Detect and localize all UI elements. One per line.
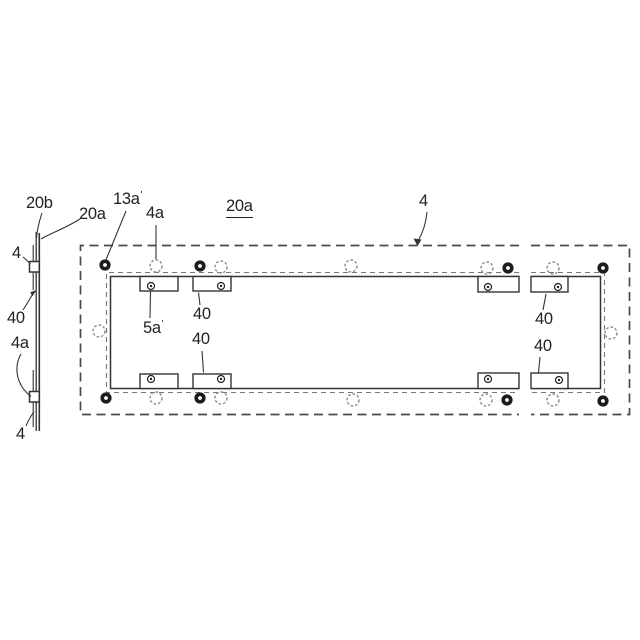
- label-4a-top: 4a: [146, 205, 164, 222]
- inner-opening-edge-main: [111, 277, 520, 389]
- open-hole-icon: [347, 394, 359, 406]
- side-clip-lower: [30, 392, 40, 403]
- open-hole-icon: [93, 325, 105, 337]
- side-view: [30, 232, 40, 431]
- label-4-side-top: 4: [12, 245, 21, 262]
- clip-bracket: [140, 374, 178, 389]
- label-4-side-bottom: 4: [16, 426, 25, 443]
- open-hole-icon: [345, 260, 357, 272]
- label-20b: 20b: [26, 195, 53, 212]
- label-40-right-upper: 40: [535, 311, 553, 328]
- patent-drawing-page: 20b 20a 4 40 4a 4 13a' 4a 20a 4 5a' 40 4…: [0, 0, 640, 640]
- label-40-right-lower: 40: [534, 338, 552, 355]
- open-hole-icon: [215, 261, 227, 273]
- leader-40-right-upper: [543, 294, 546, 310]
- leader-lines: [17, 211, 546, 426]
- clip-bracket: [531, 277, 568, 293]
- side-clip-upper: [30, 262, 40, 273]
- label-13a: 13a': [113, 191, 142, 208]
- inner-opening-edge-right: [531, 277, 601, 389]
- leader-4a-side: [17, 354, 31, 397]
- leader-4-arrow: [418, 212, 427, 241]
- open-hole-icon: [547, 394, 559, 406]
- label-5a: 5a': [143, 320, 163, 337]
- label-20a-side: 20a: [79, 206, 106, 223]
- clip-bracket: [193, 277, 231, 292]
- open-hole-icon: [480, 394, 492, 406]
- leader-40-left-lower: [202, 351, 204, 373]
- clip-bracket: [140, 277, 178, 292]
- clip-bracket: [478, 277, 519, 293]
- leader-20a-side: [41, 219, 80, 239]
- open-hole-icon: [150, 260, 162, 272]
- leader-13a: [106, 211, 127, 261]
- label-20a-title: 20a: [226, 198, 253, 218]
- open-hole-icon: [215, 392, 227, 404]
- open-hole-icon: [150, 392, 162, 404]
- label-40-side: 40: [7, 310, 25, 327]
- clip-bracket: [478, 373, 519, 389]
- open-hole-icon: [605, 327, 617, 339]
- leader-5a: [150, 292, 151, 319]
- label-40-left-upper: 40: [193, 306, 211, 323]
- clip-bracket: [193, 374, 231, 389]
- leader-40-right-lower: [539, 357, 541, 373]
- label-4-arrow: 4: [419, 193, 428, 210]
- leader-4-side-top: [23, 257, 31, 264]
- leader-40-left-upper: [199, 293, 201, 306]
- label-40-left-lower: 40: [192, 331, 210, 348]
- label-4a-side: 4a: [11, 335, 29, 352]
